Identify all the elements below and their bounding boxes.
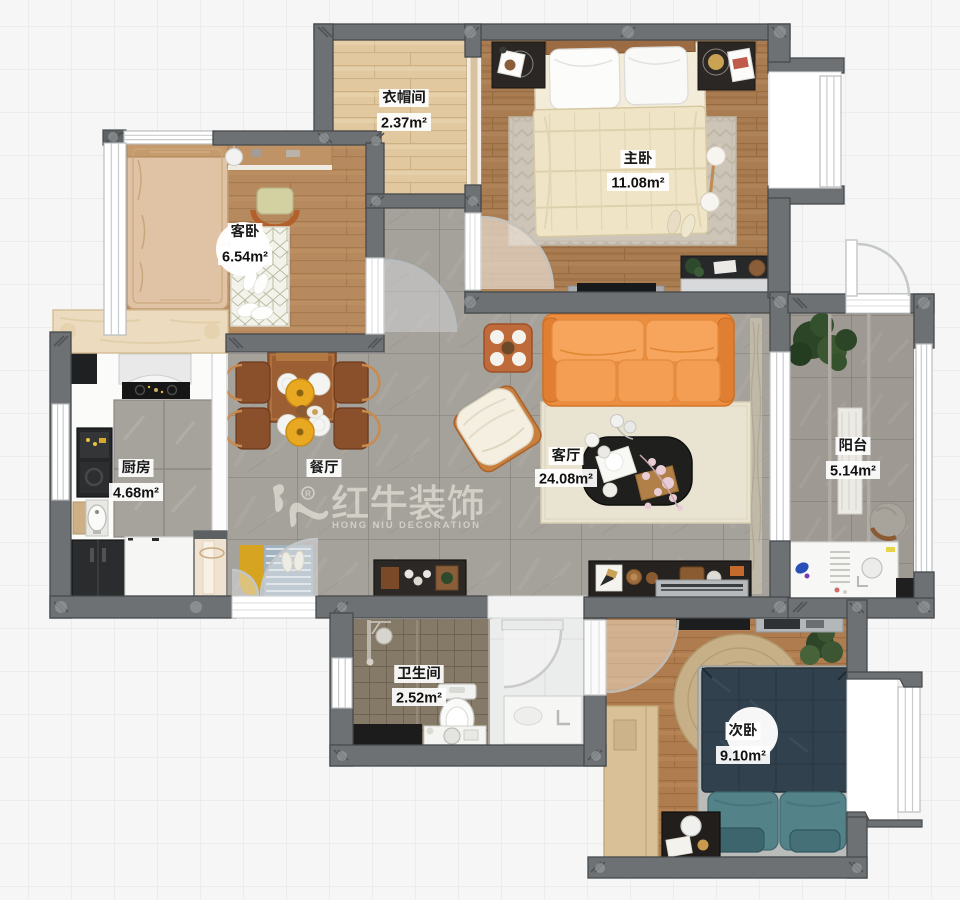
svg-text:2.37m²: 2.37m² — [381, 116, 427, 132]
svg-text:9.10m²: 9.10m² — [720, 749, 766, 765]
svg-text:24.08m²: 24.08m² — [539, 472, 593, 488]
svg-text:5.14m²: 5.14m² — [830, 464, 876, 480]
svg-text:11.08m²: 11.08m² — [611, 176, 664, 192]
svg-text:6.54m²: 6.54m² — [222, 250, 268, 266]
svg-text:2.52m²: 2.52m² — [396, 691, 442, 707]
svg-text:R: R — [305, 490, 311, 499]
svg-text:4.68m²: 4.68m² — [113, 486, 159, 502]
